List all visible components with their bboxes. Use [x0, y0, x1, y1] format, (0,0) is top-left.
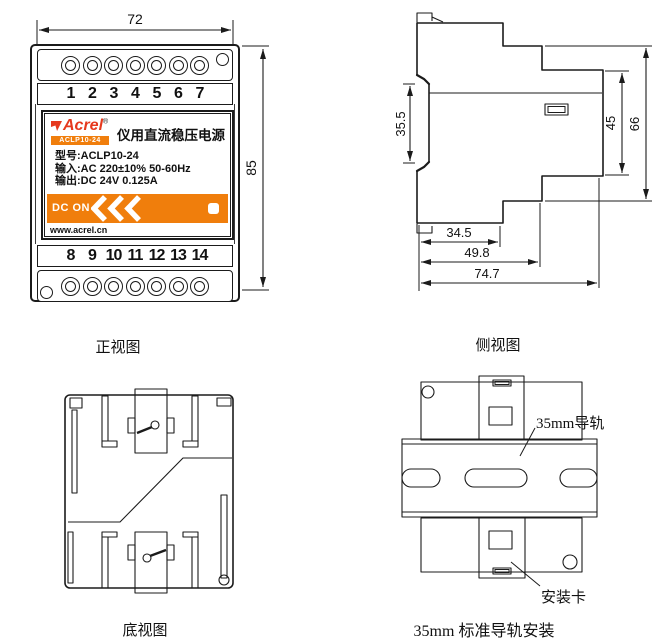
terminal-hole [169, 56, 188, 75]
case-wall-line [35, 104, 36, 244]
spec-model: 型号:ACLP10-24 [55, 150, 191, 163]
dim-height-label: 85 [243, 160, 259, 176]
acrel-logo: Acrel® ACLP10-24 [51, 117, 109, 145]
terminal-number: 5 [147, 85, 166, 103]
terminal-number: 6 [169, 85, 188, 103]
terminal-number: 1 [61, 85, 80, 103]
dim-depth1-label: 34.5 [446, 225, 471, 240]
dc-on-band: DC ON [47, 194, 228, 223]
dim-width-label: 72 [127, 11, 143, 27]
terminal-number: 3 [104, 85, 123, 103]
top-terminal-block [37, 49, 233, 81]
dim-outer-height-label: 66 [627, 117, 642, 131]
terminal-hole [147, 56, 166, 75]
front-view-device: 1 2 3 4 5 6 7 Acrel® ACLP10-24 仪用直流稳压电源 … [30, 44, 240, 302]
terminal-number: 14 [190, 247, 209, 265]
terminal-hole [169, 277, 188, 296]
terminal-number: 2 [83, 85, 102, 103]
brand-name: Acrel [63, 117, 103, 134]
terminal-numbers-top: 1 2 3 4 5 6 7 [37, 83, 233, 105]
caption-side-view: 侧视图 [458, 334, 538, 355]
caption-rail-mount: 35mm 标准导轨安装 [396, 617, 572, 641]
case-wall-line [234, 104, 235, 244]
label-title: 仪用直流稳压电源 [117, 124, 225, 144]
seal-hole-icon [216, 53, 229, 66]
terminal-hole [104, 56, 123, 75]
terminal-hole [126, 56, 145, 75]
terminal-hole [61, 277, 80, 296]
terminal-numbers-bottom: 8 9 10 11 12 13 14 [37, 245, 233, 267]
rail-mount-drawing [402, 376, 597, 586]
chevrons [91, 194, 153, 223]
terminal-hole [83, 277, 102, 296]
terminal-number: 11 [126, 247, 145, 265]
terminal-number: 4 [126, 85, 145, 103]
acrel-logo-icon [51, 121, 62, 131]
terminal-number: 10 [104, 247, 123, 265]
seal-hole-icon [40, 286, 53, 299]
rail-label: 35mm导轨 [536, 412, 604, 433]
label-specs: 型号:ACLP10-24 输入:AC 220±10% 50-60Hz 输出:DC… [55, 150, 191, 188]
terminal-number: 7 [190, 85, 209, 103]
spec-input: 输入:AC 220±10% 50-60Hz [55, 163, 191, 176]
chevron-left-icon [128, 197, 139, 220]
terminal-hole [126, 277, 145, 296]
terminal-hole [83, 56, 102, 75]
terminal-number: 8 [61, 247, 80, 265]
terminal-hole [147, 277, 166, 296]
chevron-left-icon [94, 197, 105, 220]
terminal-hole [190, 277, 209, 296]
mount-hole-icon [422, 386, 434, 398]
bottom-terminal-block [37, 270, 233, 302]
spec-output: 输出:DC 24V 0.125A [55, 175, 191, 188]
terminal-hole [104, 277, 123, 296]
terminal-number: 12 [147, 247, 166, 265]
terminal-hole [61, 56, 80, 75]
terminal-number: 9 [83, 247, 102, 265]
mount-hole-icon [563, 555, 577, 569]
dim-inner-height-label: 45 [603, 116, 618, 130]
dimension-drawing-page: 72 85 35.5 45 66 [0, 0, 668, 644]
model-badge: ACLP10-24 [51, 136, 109, 145]
bottom-view-drawing [65, 389, 233, 593]
dim-depth3-label: 74.7 [474, 266, 499, 281]
registered-mark: ® [103, 119, 108, 126]
rail-leader-line [520, 428, 535, 456]
clip-label: 安装卡 [541, 586, 586, 607]
caption-bottom-view: 底视图 [100, 619, 190, 640]
dim-groove-label: 35.5 [393, 111, 408, 136]
clip-lever-icon [150, 550, 166, 556]
side-view-drawing: 35.5 45 66 34.5 49.8 74.7 [393, 13, 652, 291]
terminal-hole [190, 56, 209, 75]
product-label: Acrel® ACLP10-24 仪用直流稳压电源 型号:ACLP10-24 输… [41, 110, 234, 240]
dc-on-text: DC ON [52, 202, 90, 214]
chevron-left-icon [111, 197, 122, 220]
caption-front-view: 正视图 [78, 336, 158, 357]
led-indicator-icon [208, 203, 219, 214]
dim-depth2-label: 49.8 [464, 245, 489, 260]
terminal-number: 13 [169, 247, 188, 265]
website-text: www.acrel.cn [50, 225, 107, 235]
clip-lever-icon [137, 427, 152, 433]
